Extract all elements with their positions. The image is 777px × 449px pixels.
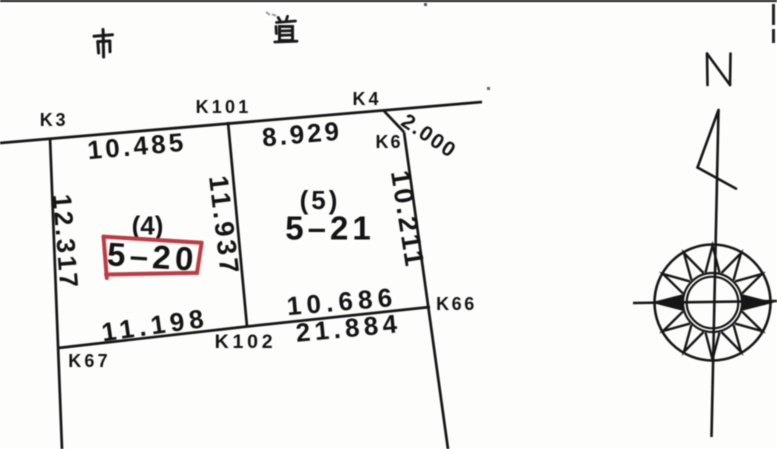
svg-text:5–21: 5–21: [285, 210, 374, 247]
svg-text:K67: K67: [68, 351, 111, 371]
svg-text:K3: K3: [40, 110, 69, 130]
svg-text:K66: K66: [436, 294, 477, 314]
svg-text:K4: K4: [352, 89, 381, 109]
svg-text:K6: K6: [375, 132, 402, 152]
svg-text:K101: K101: [196, 97, 252, 117]
svg-text:K102: K102: [215, 331, 277, 353]
